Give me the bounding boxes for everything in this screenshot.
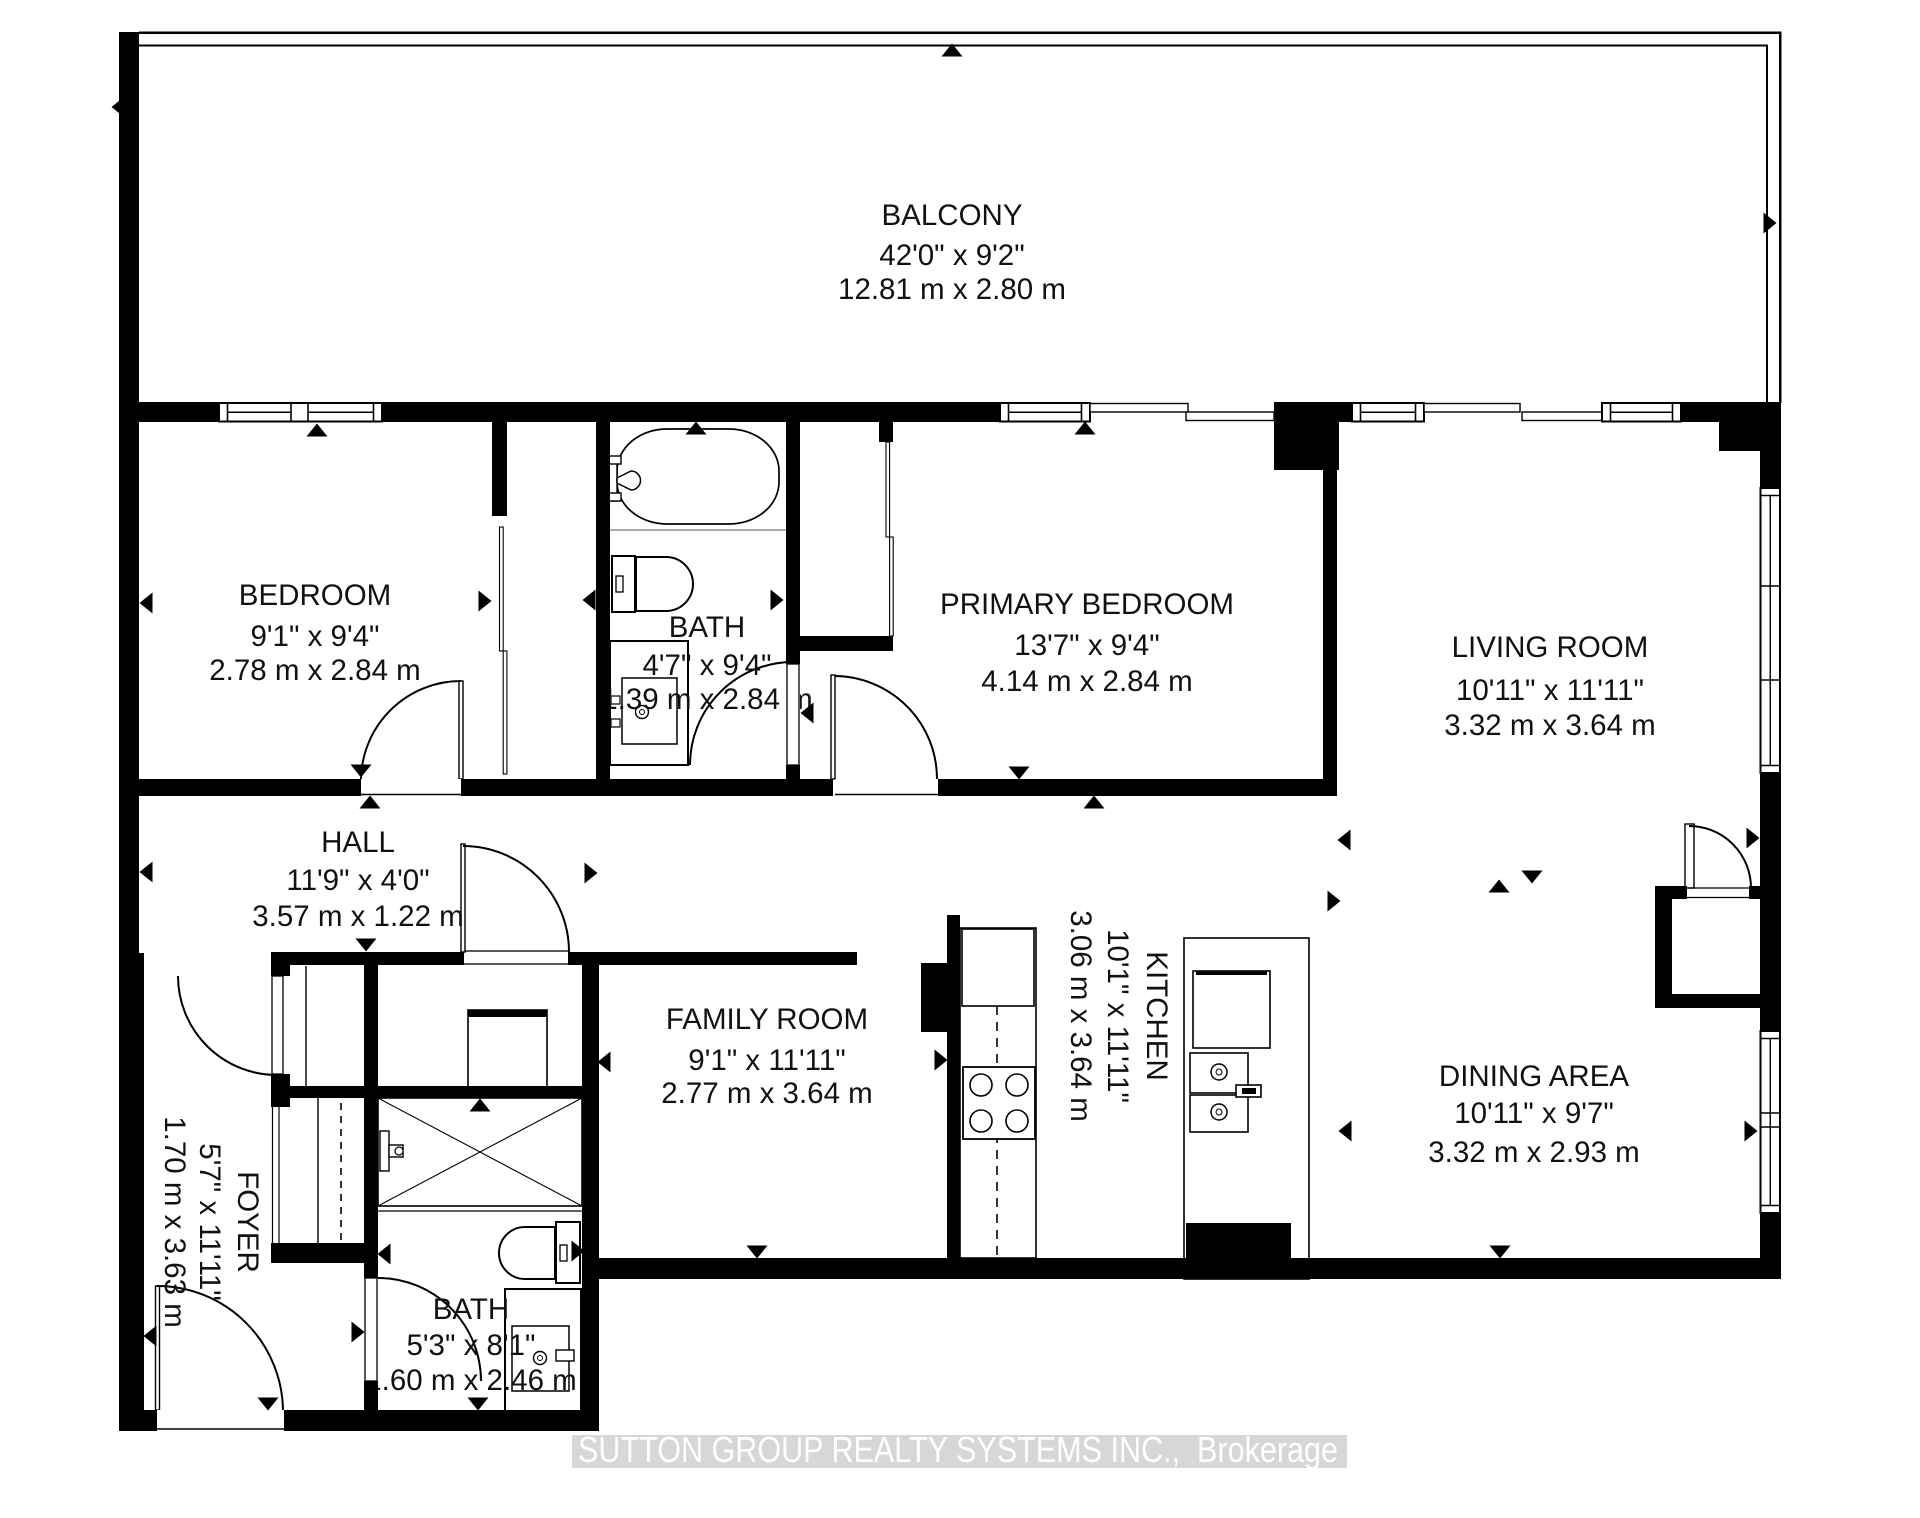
svg-text:DINING AREA: DINING AREA <box>1439 1060 1629 1093</box>
svg-text:LIVING ROOM: LIVING ROOM <box>1452 631 1649 664</box>
svg-text:5'3" x 8'1": 5'3" x 8'1" <box>407 1329 536 1362</box>
svg-text:4'7" x 9'4": 4'7" x 9'4" <box>643 649 772 682</box>
svg-text:HALL: HALL <box>321 826 395 859</box>
svg-text:3.32 m x 3.64 m: 3.32 m x 3.64 m <box>1444 709 1656 742</box>
svg-text:3.32 m x 2.93 m: 3.32 m x 2.93 m <box>1428 1136 1640 1169</box>
svg-text:10'11" x 9'7": 10'11" x 9'7" <box>1454 1097 1614 1130</box>
svg-text:KITCHEN: KITCHEN <box>1140 951 1173 1080</box>
svg-text:BEDROOM: BEDROOM <box>239 579 391 612</box>
svg-text:10'11" x 11'11": 10'11" x 11'11" <box>1456 674 1644 707</box>
svg-text:10'1" x 11'11": 10'1" x 11'11" <box>1101 929 1134 1103</box>
svg-text:4.14 m x 2.84 m: 4.14 m x 2.84 m <box>981 665 1193 698</box>
svg-text:PRIMARY BEDROOM: PRIMARY BEDROOM <box>940 588 1234 621</box>
svg-text:2.77 m x 3.64 m: 2.77 m x 3.64 m <box>661 1077 873 1110</box>
svg-text:3.57 m x 1.22 m: 3.57 m x 1.22 m <box>252 900 464 933</box>
svg-text:13'7" x 9'4": 13'7" x 9'4" <box>1014 629 1159 662</box>
svg-text:SUTTON GROUP REALTY SYSTEMS IN: SUTTON GROUP REALTY SYSTEMS INC., Broker… <box>578 1429 1338 1470</box>
svg-text:FOYER: FOYER <box>231 1171 264 1273</box>
svg-text:BALCONY: BALCONY <box>882 199 1023 232</box>
svg-text:1.60 m x 2.46 m: 1.60 m x 2.46 m <box>365 1364 577 1397</box>
svg-text:2.78 m x 2.84 m: 2.78 m x 2.84 m <box>209 654 421 687</box>
svg-text:BATH: BATH <box>669 611 746 644</box>
svg-text:5'7" x 11'11": 5'7" x 11'11" <box>193 1143 226 1300</box>
svg-text:9'1" x 11'11": 9'1" x 11'11" <box>688 1044 845 1077</box>
svg-text:11'9" x 4'0": 11'9" x 4'0" <box>286 864 429 897</box>
svg-text:FAMILY ROOM: FAMILY ROOM <box>666 1003 868 1036</box>
svg-text:12.81 m x 2.80 m: 12.81 m x 2.80 m <box>838 273 1066 306</box>
svg-text:9'1" x 9'4": 9'1" x 9'4" <box>251 620 380 653</box>
svg-text:1.39 m x 2.84 m: 1.39 m x 2.84 m <box>601 683 813 716</box>
svg-text:42'0" x 9'2": 42'0" x 9'2" <box>879 239 1024 272</box>
svg-text:1.70 m x 3.63 m: 1.70 m x 3.63 m <box>158 1116 191 1328</box>
svg-text:BATH: BATH <box>433 1293 510 1326</box>
svg-text:3.06 m x 3.64 m: 3.06 m x 3.64 m <box>1064 910 1097 1122</box>
